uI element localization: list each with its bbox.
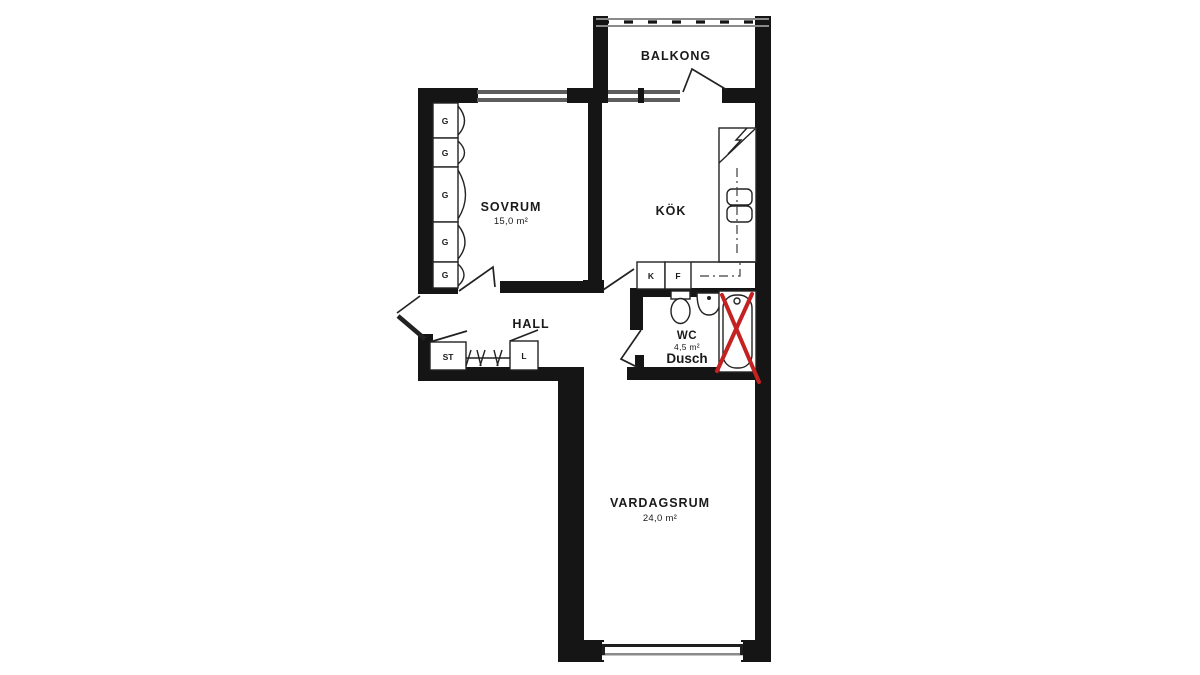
bedroom: SOVRUM 15,0 m² G G G G G — [433, 103, 541, 291]
bedroom-door-swing-icon — [459, 267, 495, 291]
bedroom-area: 15,0 m² — [494, 216, 528, 227]
sink-basin-icon — [727, 189, 752, 205]
toilet-bowl — [671, 299, 690, 324]
wardrobe-door-arc — [458, 170, 466, 219]
wardrobe-door-arc — [458, 264, 464, 286]
window-frame — [644, 90, 680, 94]
fridge-label: K — [648, 271, 655, 281]
wardrobe-label: G — [442, 190, 449, 200]
cleaning-closet-label: ST — [443, 352, 455, 362]
freezer-label: F — [675, 271, 680, 281]
wall-segment — [638, 88, 644, 103]
window-frame — [608, 98, 638, 102]
coat-rack-icon — [466, 350, 510, 366]
entrance-door-chord — [397, 296, 420, 313]
wall-segment — [418, 88, 433, 294]
living-room: VARDAGSRUM 24,0 m² — [610, 496, 710, 524]
wall-segment — [500, 281, 592, 293]
walls — [418, 16, 771, 662]
hall-label: HALL — [512, 317, 549, 331]
floorplan-canvas: BALKONG SOVRUM 15,0 m² — [0, 0, 1200, 675]
bedroom-window — [477, 90, 567, 102]
wc-shower-label: Dusch — [666, 351, 707, 366]
window-frame — [602, 644, 605, 655]
kitchen-door-swing-icon — [603, 269, 634, 290]
wardrobe-label: G — [442, 148, 449, 158]
wall-segment — [755, 16, 771, 662]
balcony-door-swing-icon — [683, 69, 727, 92]
window-frame — [477, 98, 567, 102]
wardrobe-door-arc — [458, 141, 465, 164]
wc-label: WC — [677, 330, 697, 342]
entrance-door-icon — [398, 316, 425, 339]
wardrobe-label: G — [442, 116, 449, 126]
floorplan-drawing: BALKONG SOVRUM 15,0 m² — [0, 0, 1200, 675]
wardrobe-label: G — [442, 237, 449, 247]
kitchen-label: KÖK — [656, 203, 687, 218]
wall-segment — [588, 88, 602, 293]
balcony-label: BALKONG — [641, 49, 711, 63]
cleaning-closet-door — [430, 331, 467, 342]
window-frame — [608, 90, 638, 94]
wall-segment — [741, 640, 771, 662]
window-frame — [602, 653, 743, 656]
kitchen: KÖK K F — [603, 128, 756, 290]
wall-segment — [630, 288, 643, 330]
window-frame — [644, 98, 680, 102]
wall-segment — [722, 88, 756, 103]
window-frame — [602, 644, 743, 647]
bedroom-label: SOVRUM — [481, 200, 542, 214]
wardrobe-door-arc — [458, 225, 465, 259]
linen-closet-door — [510, 330, 538, 341]
wardrobe-door-arc — [458, 106, 465, 135]
sink-basin-icon — [727, 206, 752, 222]
linen-closet-label: L — [521, 351, 526, 361]
wall-segment — [558, 367, 584, 662]
living-room-label: VARDAGSRUM — [610, 496, 710, 510]
basin-tap — [707, 296, 711, 300]
balcony: BALKONG — [596, 19, 769, 92]
toilet-icon — [671, 291, 690, 324]
window-frame — [740, 644, 743, 655]
living-room-window — [602, 642, 743, 660]
counter-centerline — [700, 262, 740, 276]
wardrobe-row: G G G G G — [433, 103, 466, 288]
wall-segment — [558, 640, 604, 662]
window-frame — [477, 90, 567, 94]
wall-segment — [583, 280, 604, 293]
living-room-area: 24,0 m² — [643, 513, 677, 524]
sink-icon — [697, 293, 721, 315]
wardrobe-label: G — [442, 270, 449, 280]
